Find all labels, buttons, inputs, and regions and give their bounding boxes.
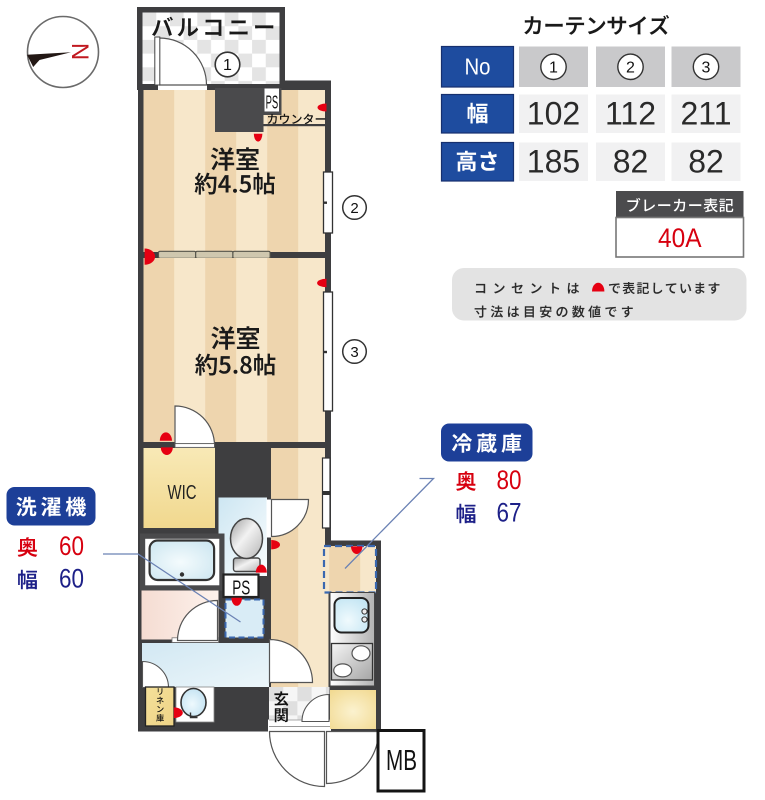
svg-text:102: 102: [527, 96, 580, 132]
svg-text:3: 3: [702, 60, 711, 77]
svg-text:PS: PS: [266, 92, 279, 112]
svg-text:82: 82: [613, 144, 649, 180]
svg-text:112: 112: [605, 96, 656, 132]
svg-text:80: 80: [497, 465, 522, 495]
svg-text:PS: PS: [232, 578, 250, 600]
svg-text:40A: 40A: [658, 223, 702, 253]
svg-text:MB: MB: [386, 745, 417, 777]
svg-text:60: 60: [59, 531, 84, 561]
svg-text:No: No: [465, 54, 491, 80]
svg-text:2: 2: [350, 200, 358, 217]
svg-text:185: 185: [527, 144, 580, 180]
svg-text:N: N: [66, 43, 93, 60]
svg-text:60: 60: [59, 564, 84, 594]
svg-text:82: 82: [688, 144, 724, 180]
svg-text:2: 2: [626, 60, 635, 77]
svg-text:1: 1: [223, 57, 232, 74]
svg-text:1: 1: [549, 60, 558, 77]
svg-text:WIC: WIC: [168, 482, 197, 504]
svg-text:211: 211: [680, 96, 731, 132]
svg-text:3: 3: [350, 344, 358, 361]
svg-text:67: 67: [497, 498, 522, 528]
